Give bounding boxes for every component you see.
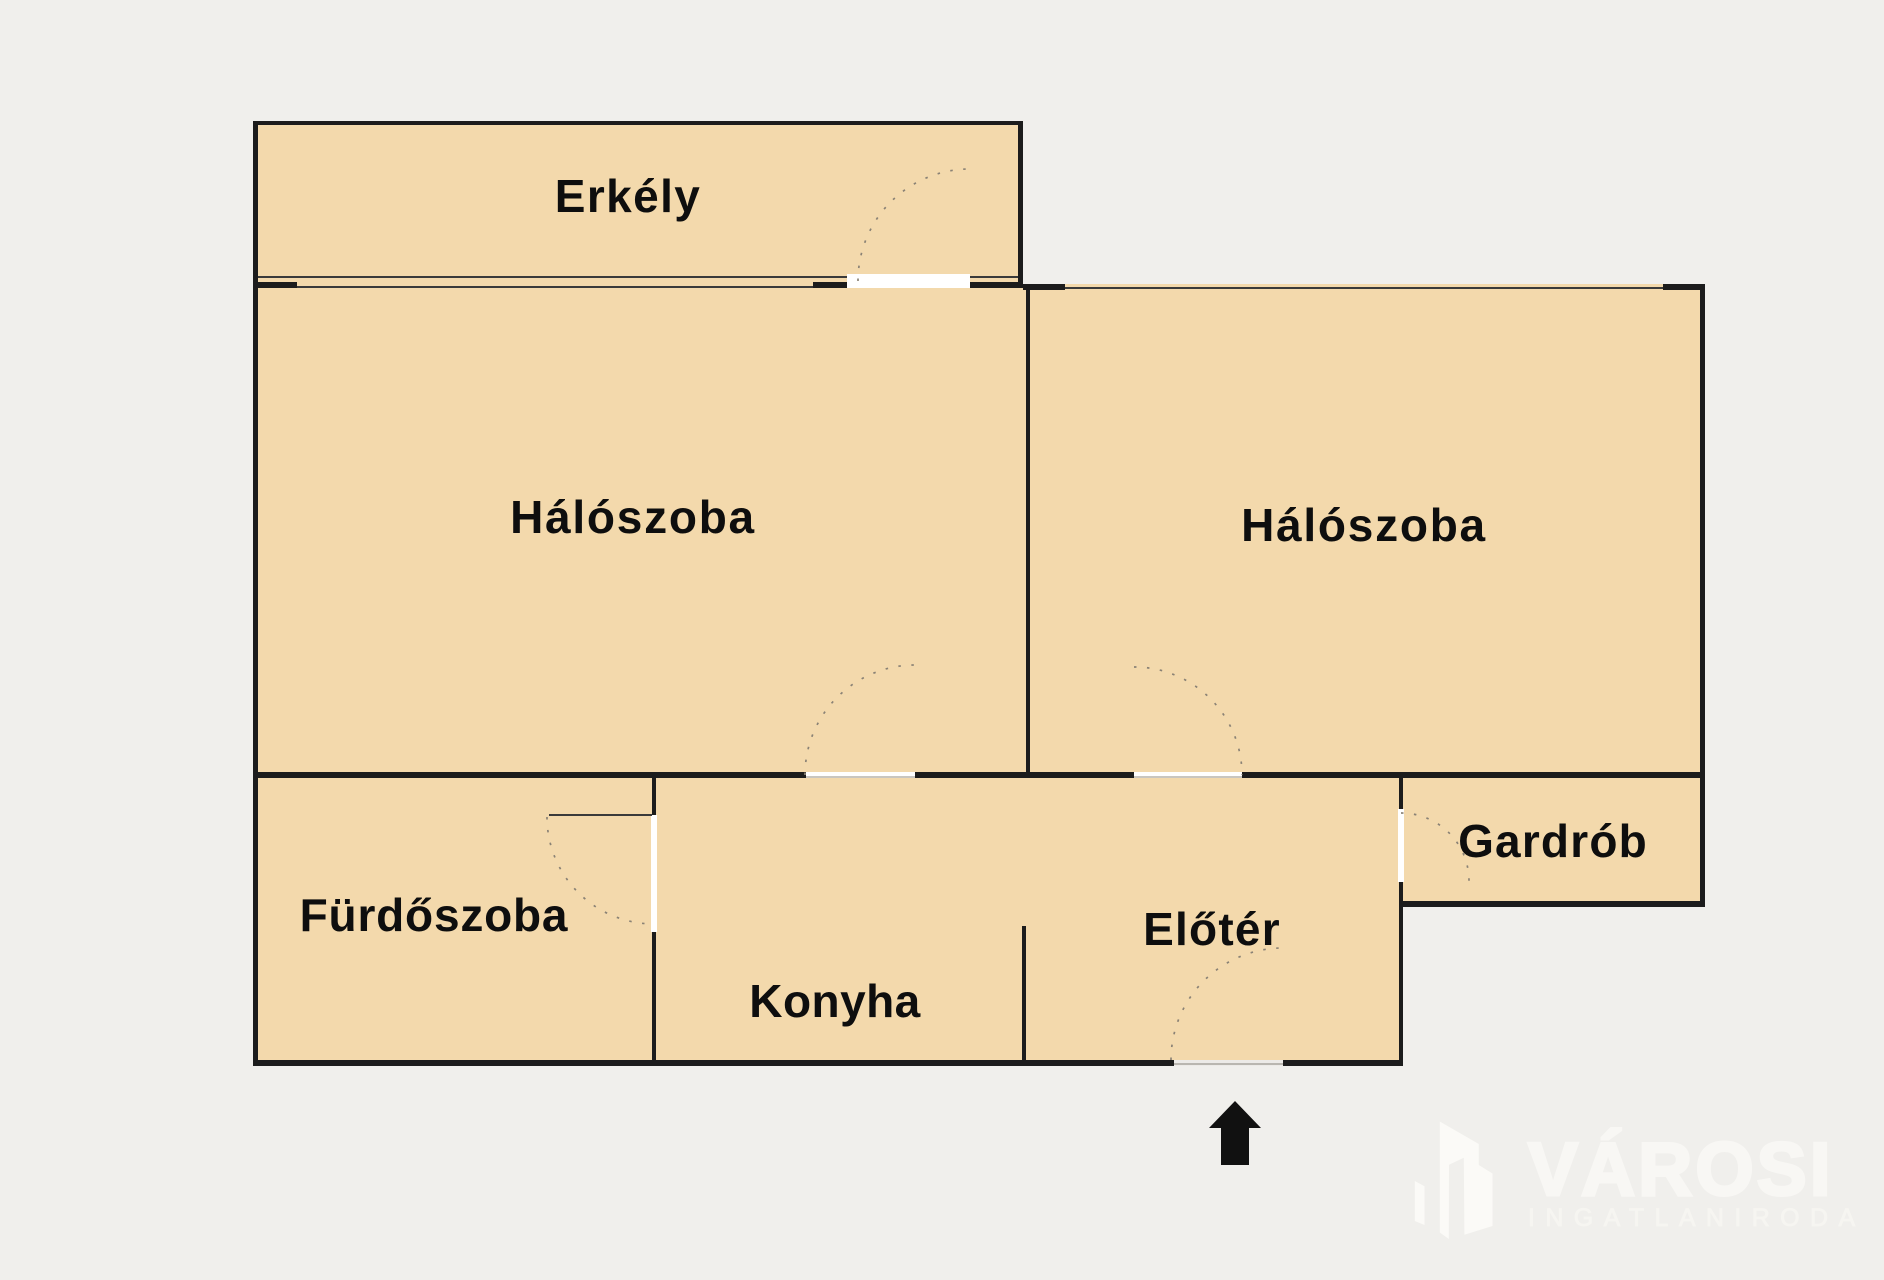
svg-text:Előtér: Előtér <box>1143 903 1281 955</box>
svg-text:VÁROSI: VÁROSI <box>1528 1127 1834 1211</box>
svg-text:Erkély: Erkély <box>555 170 702 222</box>
svg-text:Hálószoba: Hálószoba <box>1241 499 1487 551</box>
svg-text:Fürdőszoba: Fürdőszoba <box>300 889 569 941</box>
svg-text:INGATLANIRODA: INGATLANIRODA <box>1528 1204 1866 1232</box>
svg-text:Hálószoba: Hálószoba <box>510 491 756 543</box>
svg-text:Konyha: Konyha <box>749 975 920 1027</box>
svg-text:Gardrób: Gardrób <box>1458 815 1648 867</box>
